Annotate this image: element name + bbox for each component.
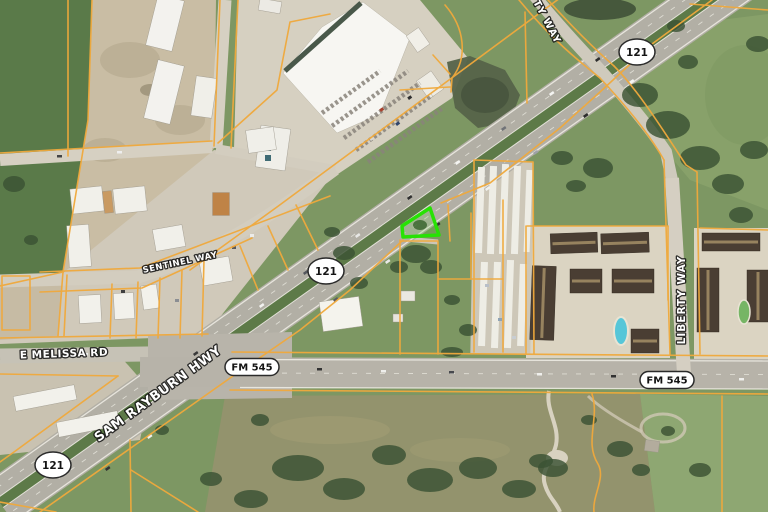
svg-text:FM 545: FM 545 — [231, 363, 272, 374]
route-shield-fm-545-west: FM 545 — [225, 359, 279, 376]
svg-text:121: 121 — [42, 460, 64, 472]
route-shield-121-south: 121 — [35, 452, 71, 478]
map-canvas[interactable]: E MELISSA RD SAM RAYBURN HWY SENTINEL WA… — [0, 0, 768, 512]
swimming-pool-2 — [738, 300, 750, 324]
svg-text:121: 121 — [315, 266, 337, 278]
svg-text:121: 121 — [626, 47, 648, 59]
route-shield-121-central: 121 — [308, 258, 344, 284]
swimming-pool-1 — [614, 317, 628, 345]
satellite-map-view[interactable]: E MELISSA RD SAM RAYBURN HWY SENTINEL WA… — [0, 0, 768, 512]
farm-house — [644, 440, 659, 453]
svg-text:FM 545: FM 545 — [646, 376, 687, 387]
route-shield-fm-545-east: FM 545 — [640, 372, 694, 389]
tan-building — [213, 193, 230, 216]
route-shield-121-north: 121 — [619, 39, 655, 65]
road-label-liberty-way: LIBERTY WAY — [676, 256, 688, 345]
